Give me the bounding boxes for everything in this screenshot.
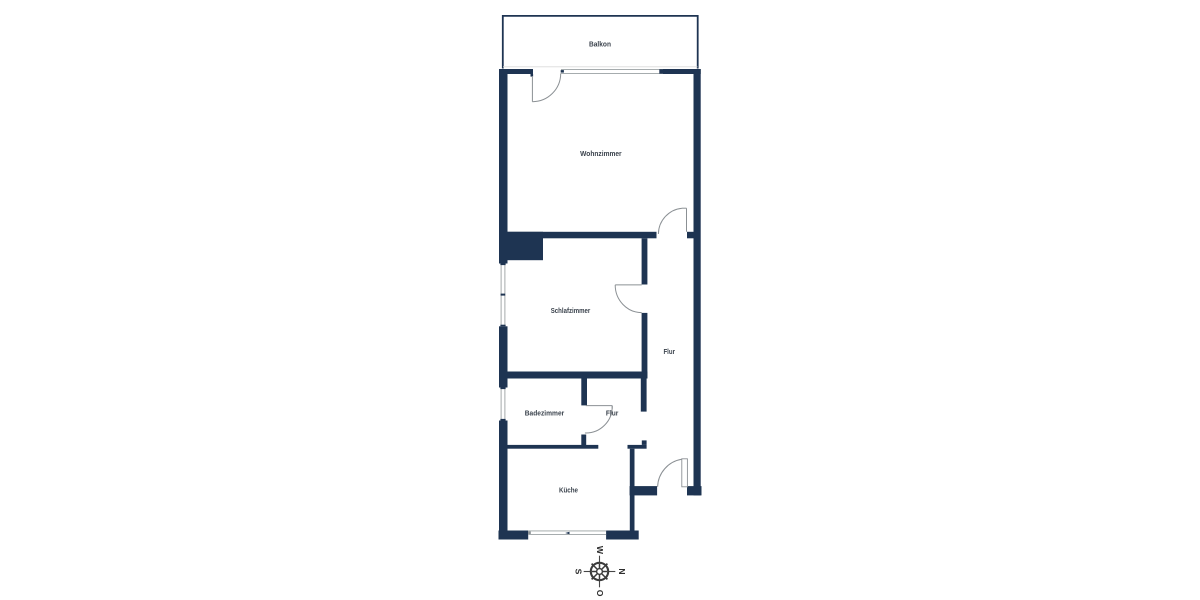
svg-text:Küche: Küche [559,486,578,495]
svg-text:Schlafzimmer: Schlafzimmer [551,306,591,315]
svg-text:Badezimmer: Badezimmer [525,408,565,417]
svg-text:N: N [617,568,627,574]
svg-text:W: W [595,546,605,555]
svg-text:Wohnzimmer: Wohnzimmer [580,149,622,158]
svg-text:Flur: Flur [606,408,619,417]
svg-text:Flur: Flur [663,347,675,356]
svg-text:Balkon: Balkon [589,40,611,49]
svg-text:S: S [573,569,583,575]
svg-text:O: O [595,590,605,597]
